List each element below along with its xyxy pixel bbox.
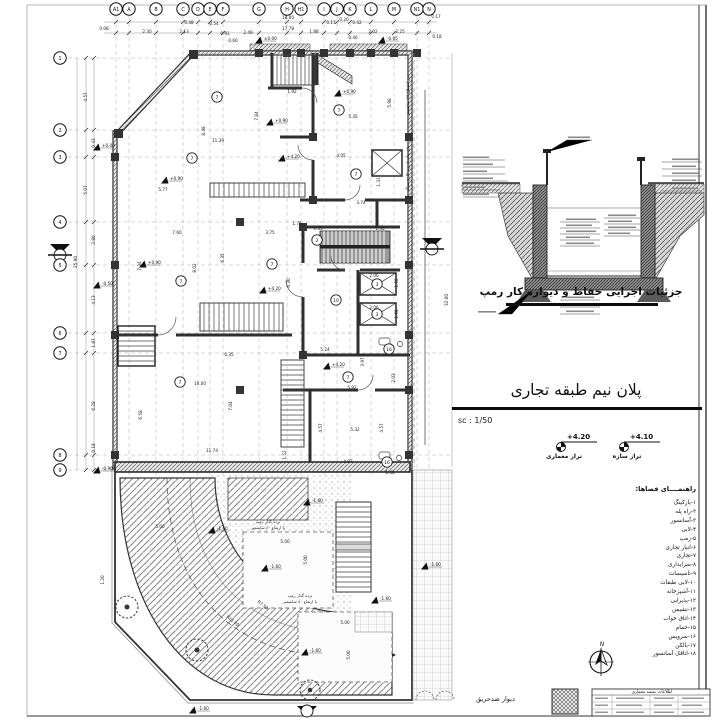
level-flag-icon	[371, 597, 379, 604]
dim-label: 1.60	[394, 278, 399, 288]
dim-label: 0.18	[432, 34, 442, 39]
level-flag-value: -1.60	[430, 562, 441, 567]
dim-label: 8.48	[201, 126, 206, 136]
dim-label: 1.52	[282, 450, 287, 460]
legend-header: راهنمــــای فضاها:	[572, 485, 696, 493]
level-flag-value: +0.90	[343, 89, 356, 94]
level-flag-value: +0.90	[275, 118, 288, 123]
dim-label: 1.31	[376, 177, 381, 187]
dim-label: 1.92	[287, 89, 297, 94]
legend-item: ۱۴-اتاق خواب	[572, 615, 696, 624]
level-flag-icon	[278, 155, 286, 162]
struct-level-label: تراز سازه	[602, 453, 652, 460]
grid-bubble-label: H1	[298, 7, 305, 13]
room-number: 7	[180, 279, 183, 285]
legend-item: ۱۳-نشیمن	[572, 606, 696, 615]
title-underline	[452, 407, 702, 410]
grid-bubble-label: N	[427, 7, 431, 13]
dim-label: 17.78	[282, 26, 294, 31]
dim-label: 7.04	[228, 401, 233, 411]
dim-label: 6.58	[138, 410, 143, 420]
note-text: نرده گذار رمپ	[288, 593, 313, 598]
dimension-chains	[77, 22, 452, 470]
level-flag-icon	[334, 90, 342, 97]
expansion-joint	[414, 53, 425, 467]
dim-label: 18.00	[282, 15, 294, 20]
level-flag-value: -1.60	[380, 596, 391, 601]
room-number: 10	[333, 298, 339, 304]
room-number: 2	[316, 238, 319, 244]
room-number: 7	[216, 95, 219, 101]
level-flag-icon	[189, 707, 197, 714]
dim-label: 6.30	[286, 278, 291, 288]
dim-label: 2.49	[243, 30, 253, 35]
dim-label: 1.20	[100, 575, 105, 585]
space-legend: راهنمــــای فضاها: ۱-پارکینگ۲-راه پله۳-آ…	[572, 485, 696, 659]
level-flag-value: -1.60	[312, 498, 323, 503]
room-number: 7	[191, 156, 194, 162]
grid-bubble-label: L	[370, 7, 373, 13]
grid-bubble-label: 6	[58, 331, 61, 337]
room-number: 3	[376, 282, 379, 288]
dim-label: 0.20	[339, 17, 349, 22]
dim-label: 5.98	[387, 98, 392, 108]
dim-label: 1.60	[394, 309, 399, 319]
grid-bubble-label: 4	[58, 220, 61, 226]
dim-label: 0.48	[184, 20, 194, 25]
level-flag-icon	[161, 177, 169, 184]
dim-label: 5.32	[350, 427, 360, 432]
grid-bubble-label: E	[208, 7, 211, 13]
dim-label: 5.00	[155, 524, 165, 529]
dim-label: 7.84	[254, 111, 259, 121]
dim-label: 2.06	[369, 273, 379, 278]
dim-label: 4.57	[83, 92, 88, 102]
grid-bubble-label: H	[285, 7, 289, 13]
titleblock-header: اطلاعات نقشه معماری	[596, 690, 708, 695]
room-number: 7	[179, 380, 182, 386]
page-title: پلان نیم طبقه تجاری	[450, 381, 702, 399]
room-number: 7	[355, 172, 358, 178]
dim-label: 6.35	[224, 352, 234, 357]
dim-label: 1.35	[313, 226, 323, 231]
dim-label: 11.74	[206, 448, 218, 453]
legend-item: ۱۶-سرویس	[572, 633, 696, 642]
core-stair	[320, 231, 390, 263]
dim-label: 4.57	[318, 423, 323, 433]
arch-level-label: تراز معماری	[538, 453, 590, 460]
level-flag-value: +0.00	[102, 143, 115, 148]
dim-label: 5.00	[303, 555, 308, 565]
level-flag-value: -1.60	[310, 648, 321, 653]
dim-label: 5.00	[280, 539, 290, 544]
grid-bubble-label: A1	[113, 7, 119, 13]
dim-label: 0.91	[220, 31, 230, 36]
legend-item: ۱۸-اتاقک آسانسور	[572, 650, 696, 659]
level-flag-value: -0.05	[387, 36, 398, 41]
grid-bubble-label: J	[335, 7, 337, 13]
room-number: 7	[271, 262, 274, 268]
grid-bubble-label: 9	[58, 468, 61, 474]
grid-bubble-label: G	[257, 7, 261, 13]
dim-label: 0.42	[352, 20, 362, 25]
dim-label: 2.80	[91, 235, 96, 245]
grid-bubble-label: M	[392, 7, 396, 13]
dim-label: 1.88	[309, 29, 319, 34]
structural-grid-lines	[68, 16, 450, 478]
dim-label: 8.02	[192, 263, 197, 273]
site-plan	[112, 467, 454, 703]
dim-label: 1.35	[375, 226, 385, 231]
dim-label: 4.97	[343, 459, 353, 464]
level-markers	[557, 442, 661, 452]
dim-label: 0.46	[348, 35, 358, 40]
grid-bubble-label: D	[196, 7, 200, 13]
grid-bubble-label: 1	[58, 56, 61, 62]
detail-caption: جزئیات اجرایی حفاظ و دیواره کار رمپ	[458, 286, 704, 298]
dim-label: 2.13	[179, 29, 189, 34]
legend-item: ۴-لابی	[572, 526, 696, 535]
dim-label: 5.77	[158, 187, 168, 192]
level-flag-value: +4.20	[287, 154, 300, 159]
drawing-sheet: A1ABCDEFGHH1IJKLMN1N123456789 0.480.5418…	[0, 0, 720, 720]
struct-level-value: +4.10	[630, 433, 653, 441]
level-flag-value: ±0.00	[264, 36, 277, 41]
level-flag-value: +4.20	[332, 362, 345, 367]
legend-item: ۶-انبار تجاری	[572, 544, 696, 553]
caption-underline	[506, 303, 658, 306]
note-text: با ارتفاع ۸۰ سانتیمتر	[282, 599, 317, 604]
dim-label: 5.24	[320, 347, 330, 352]
dim-label: 2.30	[142, 29, 152, 34]
dim-label: 0.54	[209, 21, 219, 26]
dim-label: 3.97	[360, 357, 365, 367]
grid-bubble-label: 2	[58, 128, 61, 134]
dim-label: 5.00	[346, 650, 351, 660]
grid-bubble-label: N1	[414, 7, 421, 13]
dim-label: 7.60	[172, 230, 182, 235]
room-number: 16	[386, 347, 392, 353]
level-flag-icon	[259, 287, 267, 294]
grid-bubble-label: 5	[58, 263, 61, 269]
level-flag-value: -1.60	[198, 706, 209, 711]
legend-list: ۱-پارکینگ۲-راه پله۳-آسانسور۴-لابی۵-رمپ۶-…	[572, 499, 696, 659]
level-flag-value: -1.60	[270, 564, 281, 569]
dim-label: 0.18	[91, 443, 96, 453]
scale-label: sc : 1/50	[458, 416, 492, 425]
dim-label: 2.02	[368, 29, 378, 34]
dim-label: 6.28	[91, 401, 96, 411]
grid-bubble-label: 7	[58, 351, 61, 357]
note-text: نرده گذار رمپ	[256, 519, 281, 524]
dim-label: 11.39	[212, 138, 224, 143]
dim-label: 4.13	[91, 295, 96, 305]
room-number: 16	[384, 460, 390, 466]
legend-item: ۱۵-حمام	[572, 624, 696, 633]
legend-item: ۱۷-بالکن	[572, 642, 696, 651]
note-text: جان پناه با رویه کاری سنگ	[405, 144, 410, 191]
grid-bubble-label: B	[154, 7, 157, 13]
grid-bubble-label: 3	[58, 155, 61, 161]
room-number: 7	[338, 108, 341, 114]
grid-bubble-label: 8	[58, 453, 61, 459]
dim-label: 4.57	[379, 423, 384, 433]
level-flag-value: +4.20	[268, 286, 281, 291]
dim-label: 5.92	[347, 385, 357, 390]
note-text: با ارتفاع ۸۰ سانتیمتر	[250, 525, 285, 530]
level-flag-icon	[266, 119, 274, 126]
dim-label: 0.08	[99, 26, 109, 31]
dim-label: 2.03	[391, 373, 396, 383]
room-number: 7	[347, 375, 350, 381]
legend-item: ۱۲-پذیرایی	[572, 597, 696, 606]
bottom-wall	[115, 462, 410, 472]
level-flag-value: -1.60	[217, 526, 228, 531]
level-flag-value: -0.90	[102, 466, 113, 471]
dim-label: 0.17	[431, 14, 441, 19]
legend-item: ۵-رمپ	[572, 535, 696, 544]
room-number: 3	[376, 312, 379, 318]
dim-label: 1.75	[292, 221, 302, 226]
level-flag-value: +0.90	[170, 176, 183, 181]
note-text: درز انقطاع ۷۷ سانتیمتر	[405, 75, 410, 117]
dim-label: 4.05	[336, 153, 346, 158]
legend-item: ۳-آسانسور	[572, 517, 696, 526]
grid-bubble-label: F	[222, 7, 225, 13]
dim-label: 2.25	[395, 29, 405, 34]
dim-label: 10.00	[194, 381, 206, 386]
firewall-label: دیوار ضدحریق	[476, 695, 546, 703]
dim-label: 0.43	[91, 138, 96, 148]
legend-item: ۱۰-لابی طبقات	[572, 579, 696, 588]
level-flag-icon	[378, 37, 386, 44]
dim-label: 1.40	[385, 470, 395, 475]
legend-item: ۸-سرایداری	[572, 561, 696, 570]
dim-label: 3.75	[265, 230, 275, 235]
level-flag-value: +0.90	[148, 260, 161, 265]
dim-label: 3.74	[356, 200, 366, 205]
legend-item: ۹-تاسیسات	[572, 570, 696, 579]
dim-label: 25.90	[73, 256, 78, 268]
dim-label: 6.35	[220, 253, 225, 263]
dim-label: 0.60	[228, 38, 238, 43]
legend-item: ۲-راه پله	[572, 508, 696, 517]
dim-label: 0.17	[326, 20, 336, 25]
grid-bubble-label: I	[323, 7, 324, 13]
dim-label: 1.87	[91, 338, 96, 348]
legend-item: ۱۱-آشپزخانه	[572, 588, 696, 597]
north-label: N	[596, 641, 608, 648]
stairs	[118, 55, 352, 447]
dim-label: 5.35	[348, 114, 358, 119]
dim-label: 5.00	[340, 620, 350, 625]
legend-item: ۷-تجاری	[572, 552, 696, 561]
dim-label: 5.07	[83, 185, 88, 195]
level-flag-value: -0.50	[102, 281, 113, 286]
arch-level-value: +4.20	[567, 433, 590, 441]
legend-item: ۱-پارکینگ	[572, 499, 696, 508]
dim-label: 32.00	[444, 294, 449, 306]
firewall-swatch	[552, 689, 578, 714]
